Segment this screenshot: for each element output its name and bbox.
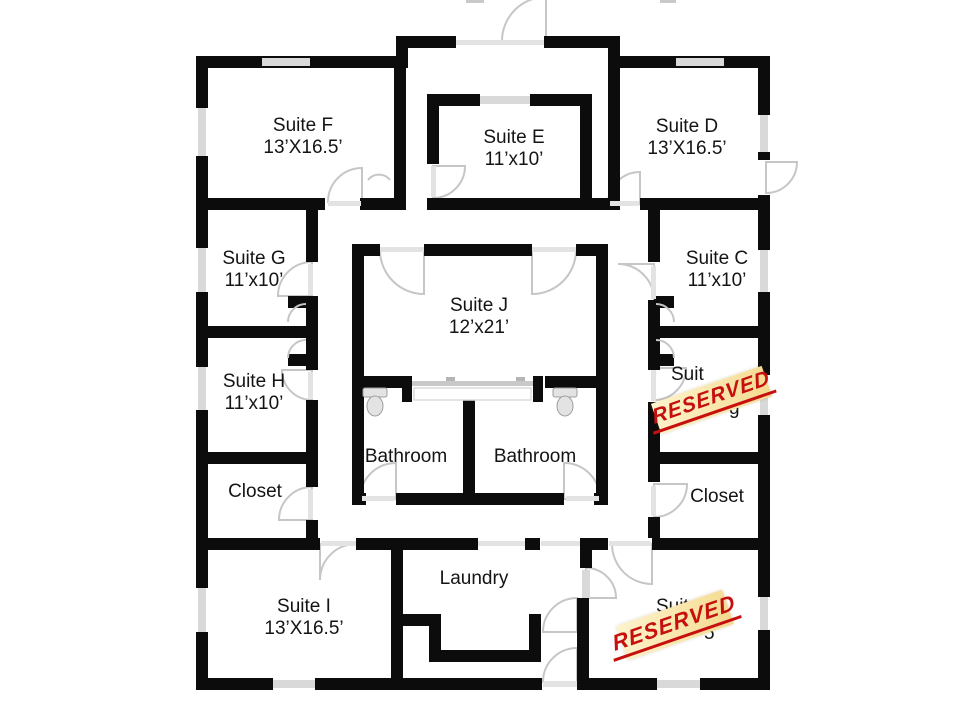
- hall-suite-door-arc: [586, 568, 616, 598]
- floorplan-canvas: Suite F 13’X16.5’ Suite E 11’x10’ Suite …: [0, 0, 960, 720]
- hall-door-arc: [543, 598, 577, 632]
- suite-i-door-arc: [320, 544, 356, 580]
- room-label-closet-left: Closet: [228, 481, 282, 503]
- room-label-suite-g: Suite G 11’x10’: [222, 248, 285, 292]
- room-label-suite-e: Suite E 11’x10’: [483, 127, 544, 171]
- room-name: Bathroom: [494, 446, 576, 467]
- room-label-laundry: Laundry: [440, 568, 509, 590]
- suite-f-door-arc: [328, 168, 362, 202]
- room-dims: 12’x21’: [449, 317, 509, 339]
- floorplan-drawing: [0, 0, 960, 720]
- room-name: Closet: [690, 486, 744, 507]
- room-name: Suite H: [223, 371, 285, 393]
- suite-h-door-arc: [282, 370, 312, 400]
- suite-j-left-door-arc: [380, 250, 424, 294]
- room-name: Suite J: [449, 295, 509, 317]
- exterior-right-door-arc: [766, 162, 797, 193]
- suite-e-door-arc: [433, 166, 465, 198]
- room-name: Suite I: [264, 596, 343, 618]
- room-label-suite-h: Suite H 11’x10’: [223, 371, 285, 415]
- room-label-suite-f: Suite F 13’X16.5’: [263, 115, 342, 159]
- room-name: Closet: [228, 481, 282, 502]
- room-dims: 13’X16.5’: [264, 618, 343, 640]
- room-name: Suite D: [647, 116, 726, 138]
- room-label-closet-right: Closet: [690, 486, 744, 508]
- entry-door-arc: [502, 0, 546, 41]
- toilet-left-icon: [363, 388, 387, 416]
- reserved-bottom-door-arc: [612, 544, 652, 584]
- room-name: Suite F: [263, 115, 342, 137]
- room-label-bathroom-left: Bathroom: [365, 446, 447, 468]
- toilet-right-icon: [553, 388, 577, 416]
- room-dims: 11’x10’: [686, 270, 748, 292]
- room-name: Suite G: [222, 248, 285, 270]
- room-dims: 13’X16.5’: [263, 137, 342, 159]
- room-dims: 13’X16.5’: [647, 138, 726, 160]
- room-label-suite-c: Suite C 11’x10’: [686, 248, 748, 292]
- room-label-suite-i: Suite I 13’X16.5’: [264, 596, 343, 640]
- room-label-bathroom-right: Bathroom: [494, 446, 576, 468]
- reserved-middle-label-fragment: Suit: [671, 364, 704, 386]
- room-name: Suite C: [686, 248, 748, 270]
- suite-j-right-door-arc: [532, 250, 576, 294]
- room-name: Suite E: [483, 127, 544, 149]
- room-dims: 11’x10’: [483, 149, 544, 171]
- exterior-bottom-door-arc: [543, 648, 577, 682]
- closet-left-door-arc: [279, 487, 312, 520]
- vanity-counter: [412, 377, 533, 400]
- room-name: Bathroom: [365, 446, 447, 467]
- suite-c-door-arc: [618, 264, 654, 300]
- room-name: Laundry: [440, 568, 509, 589]
- closet-right-door-arc: [654, 484, 687, 517]
- room-dims: 11’x10’: [222, 270, 285, 292]
- room-label-suite-j: Suite J 12’x21’: [449, 295, 509, 339]
- room-dims: 11’x10’: [223, 393, 285, 415]
- room-label-suite-d: Suite D 13’X16.5’: [647, 116, 726, 160]
